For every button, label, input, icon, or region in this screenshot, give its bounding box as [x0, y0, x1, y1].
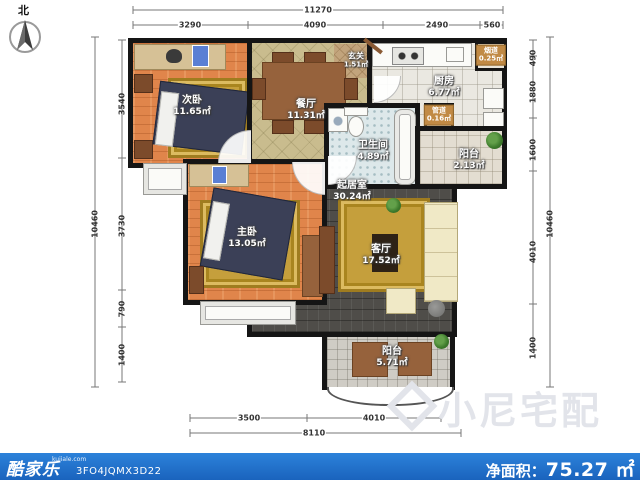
dim-top-4: 560 — [483, 21, 502, 30]
plan-id: 3FO4JQMX3D22 — [76, 466, 161, 477]
dim-right-2: 1880 — [529, 80, 538, 104]
dim-bottom-total: 8110 — [302, 429, 326, 438]
north-compass: 北 — [6, 2, 50, 54]
watermark-text: 小尼宅配 — [438, 389, 602, 433]
dim-top-2: 4090 — [303, 21, 327, 30]
compass-icon — [6, 18, 50, 58]
brand-domain: kujiale.com — [52, 456, 86, 463]
net-area-value: 75.27 — [546, 459, 609, 481]
dim-left-4: 1400 — [118, 343, 127, 367]
dim-right-5: 1400 — [529, 336, 538, 360]
floor-plan-canvas: 11270 3290 4090 2490 560 10460 3540 3730… — [0, 0, 640, 480]
dim-right-1: 490 — [529, 49, 538, 68]
dim-top-3: 2490 — [425, 21, 449, 30]
dim-right-4: 4010 — [529, 240, 538, 264]
dim-bottom-1: 3500 — [237, 414, 261, 423]
dim-top-1: 3290 — [178, 21, 202, 30]
dim-left-2: 3730 — [118, 214, 127, 238]
footer-bar: 酷家乐 kujiale.com 3FO4JQMX3D22 净面积：75.27 ㎡ — [0, 453, 640, 480]
dim-right-total: 10460 — [546, 209, 555, 239]
net-area-unit: ㎡ — [615, 459, 635, 481]
dim-left-3: 790 — [118, 300, 127, 319]
dim-top-total: 11270 — [303, 6, 333, 15]
dim-left-total: 10460 — [91, 209, 100, 239]
watermark: 小尼宅配 — [394, 380, 602, 435]
north-label: 北 — [18, 2, 50, 18]
watermark-logo-icon — [387, 381, 438, 432]
net-area-label: 净面积： — [486, 462, 546, 480]
dim-right-3: 1600 — [529, 138, 538, 162]
dim-left-1: 3540 — [118, 92, 127, 116]
dim-bottom-2: 4010 — [362, 414, 386, 423]
net-area: 净面积：75.27 ㎡ — [486, 455, 635, 482]
